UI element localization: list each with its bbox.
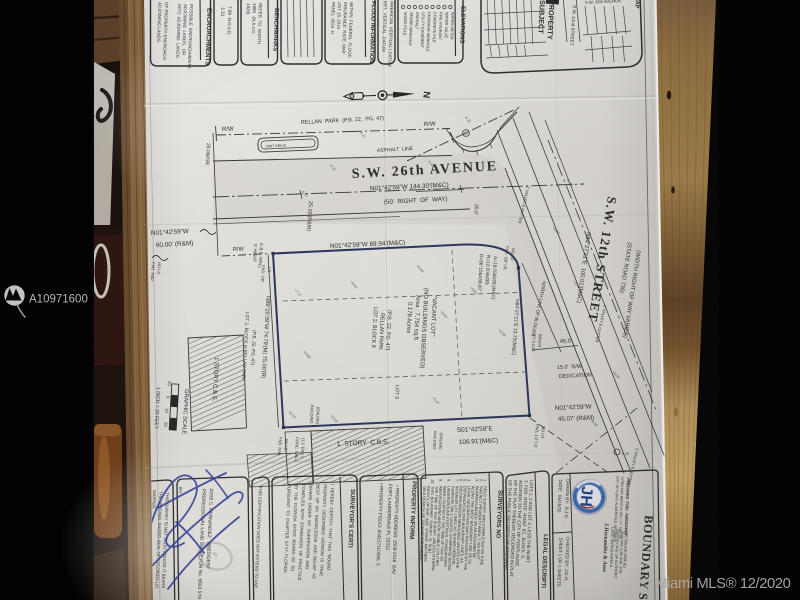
svg-text:© Miami MLS® 12/2020: © Miami MLS® 12/2020 (641, 576, 791, 592)
svg-text:A10971600: A10971600 (29, 294, 88, 306)
